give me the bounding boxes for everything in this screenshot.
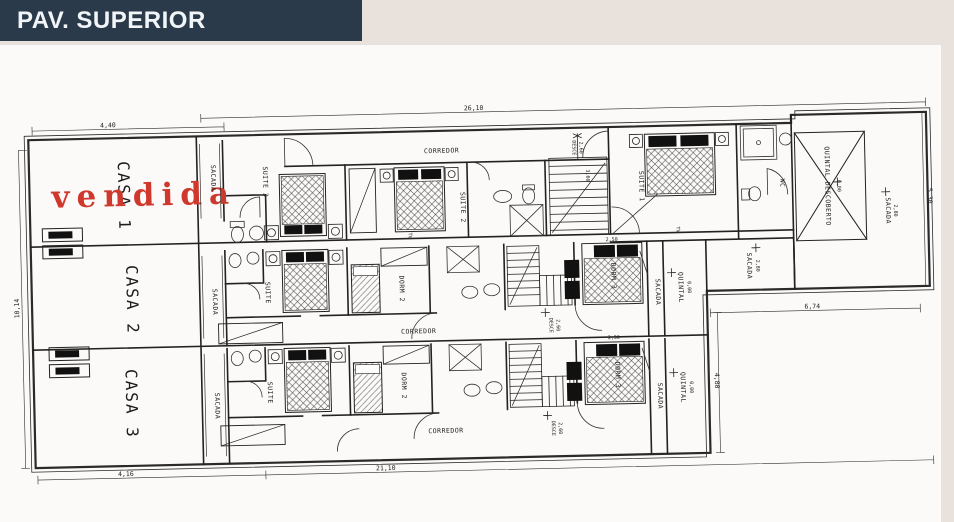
suite2-label: SUITE 2 xyxy=(459,192,468,223)
dim-top-total: 26,10 xyxy=(464,104,484,112)
casa-3-label: CASA 3 xyxy=(121,369,142,439)
quintal-casa2-label: QUINTAL xyxy=(676,272,685,303)
dorm3-casa2-label: DORM 3 xyxy=(609,263,618,290)
bed-dorm2-casa3 xyxy=(353,362,382,413)
sacada-casa3-right-label: SACADA xyxy=(656,383,665,410)
bed-suite-casa3 xyxy=(268,347,346,413)
tv-suite1-label: TV xyxy=(674,226,680,232)
corredor-casa2-label: CORREDOR xyxy=(401,327,436,336)
stairs-casa3 xyxy=(509,343,574,407)
dim-bottom-left: 4,16 xyxy=(118,470,134,478)
sacada-casa3-label: SACADA xyxy=(213,393,222,420)
bed-suite-casa2 xyxy=(266,249,344,313)
sacada-backyard-level: 2,80 xyxy=(892,204,898,216)
desce-casa1-label: DESCE xyxy=(570,140,576,155)
page-header: PAV. SUPERIOR xyxy=(0,0,362,41)
vendida-stamp: vendida xyxy=(50,176,236,216)
quintal-casa3-label: QUINTAL xyxy=(679,372,688,403)
desce-casa1-value: 2,60 xyxy=(577,142,583,154)
bed-dim-casa2: 2,50 xyxy=(606,237,618,243)
quintal-casa2-level: 0,00 xyxy=(686,281,692,293)
sacada-casa1-label: SACADA xyxy=(209,165,218,192)
dorm2-casa3-label: DORM 2 xyxy=(400,372,409,399)
quintal-descoberto-label: QUINTAL DESCOBERTO xyxy=(823,146,833,226)
corredor-casa3-label: CORREDOR xyxy=(428,426,463,435)
bed-dorm2-casa2 xyxy=(351,264,380,313)
sacada-casa2-label: SACADA xyxy=(211,289,220,316)
sacada-rear-label: SACADA xyxy=(745,253,754,280)
casa1-interior: SACADA SUITE xyxy=(199,125,793,243)
desce-casa3-label: DESCE xyxy=(550,421,556,436)
dimension-lines xyxy=(14,98,934,485)
page: PAV. SUPERIOR xyxy=(0,0,954,522)
floor-plan-drawing: CASA 1 CASA 2 CASA 3 vendida SACADA xyxy=(0,45,954,522)
dim-top-left: 4,40 xyxy=(100,121,116,129)
quintal-casa3-level: 0,00 xyxy=(688,381,694,393)
suite3-label: SUITE 3 xyxy=(261,166,270,197)
dim-right-quintal: 4,80 xyxy=(713,373,721,389)
dim-bottom-total: 21,10 xyxy=(376,464,396,472)
bed-dim-casa3: 2,50 xyxy=(608,335,620,341)
suite-casa2-label: SUITE xyxy=(264,282,272,304)
suite1-label: SUITE 1 xyxy=(637,171,646,202)
desce-casa2-label: DESCE xyxy=(547,318,553,333)
sacada-casa2-right-label: SACADA xyxy=(654,279,663,306)
bed-suite2 xyxy=(380,166,459,232)
tv-suite2-label: TV xyxy=(406,232,412,238)
page-title: PAV. SUPERIOR xyxy=(0,7,206,35)
corredor-casa1-label: CORREDOR xyxy=(424,146,459,155)
dim-right-bottom: 6,74 xyxy=(804,302,820,310)
drawing-canvas: CASA 1 CASA 2 CASA 3 vendida SACADA xyxy=(0,45,941,522)
casa2-interior: SACADA SUITE xyxy=(202,235,693,344)
stair-run-dim: 3,60 xyxy=(584,169,590,181)
wc-label: WC xyxy=(778,179,786,188)
door-thresholds xyxy=(48,231,79,375)
sacada-rear-level: 2,80 xyxy=(754,260,760,272)
bed-suite3 xyxy=(263,173,342,240)
desce-casa2-value: 2,60 xyxy=(554,319,560,331)
suite-casa3-label: SUITE xyxy=(266,382,274,404)
dim-right-height: 5,30 xyxy=(926,188,934,204)
dorm3-casa3-label: DORM 3 xyxy=(613,362,622,389)
bed-dorm3-casa3 xyxy=(566,341,645,405)
dorm2-casa2-label: DORM 2 xyxy=(397,275,406,302)
stairs-casa2 xyxy=(507,245,572,306)
desce-casa3-value: 2,60 xyxy=(557,422,563,434)
dim-left-height: 10,14 xyxy=(13,299,21,319)
bed-dorm3-casa2 xyxy=(564,242,643,305)
casa3-interior: SACADA SUITE xyxy=(204,333,695,456)
casa-2-label: CASA 2 xyxy=(122,265,143,335)
casa1-backyard: QUINTAL DESCOBERTO 0,00 SACADA 2,80 SACA… xyxy=(742,131,899,280)
sacada-backyard-label: SACADA xyxy=(884,197,893,224)
